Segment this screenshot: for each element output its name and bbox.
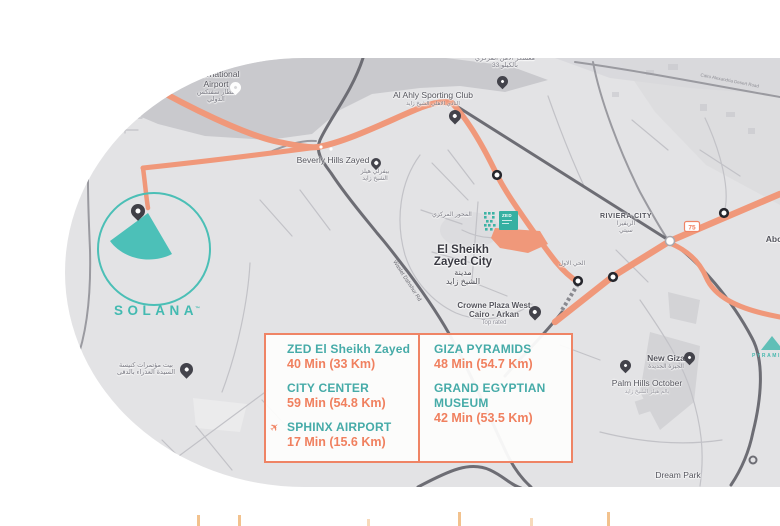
- label-new-giza: New Giza الجيزة الجديدة: [647, 354, 685, 370]
- roundabout-75: [666, 237, 675, 246]
- label-palm-hills: Palm Hills October بالم هيلز الشيخ زايد: [612, 379, 682, 395]
- interchange-blob: [491, 228, 548, 253]
- entry-grand-egyptian-museum: GRAND EGYPTIAN MUSEUM 42 Min (53.5 Km): [434, 381, 566, 426]
- label-alahly: Al Ahly Sporting Club النادي الاهلي الشي…: [393, 91, 473, 107]
- label-beverly-hills: Beverly Hills Zayed: [297, 156, 370, 166]
- solana-circle: [97, 192, 211, 306]
- road-bottom-curve: [418, 466, 521, 487]
- bottom-tick: [530, 518, 533, 526]
- solana-logo: SOLANA™: [114, 303, 200, 318]
- label-hay-awwal: الحي الاول: [559, 261, 585, 268]
- road-bottom-left: [160, 452, 250, 487]
- bottom-tick: [458, 512, 461, 526]
- trademark-symbol: ™: [195, 306, 200, 312]
- distances-infobox: ZED El Sheikh Zayed 40 Min (33 Km) CITY …: [264, 333, 573, 463]
- light-patch: [193, 398, 247, 432]
- hwy-26july: [555, 194, 780, 322]
- map-inner: 75 International Airport مطار سفنكس الدو…: [65, 58, 780, 487]
- pyramids-triangle-icon: [761, 336, 780, 350]
- label-church: بيت مؤتمرات كنيسة السيدة العذراء بالدقى: [117, 362, 175, 377]
- label-camp-33: معسكر الأمن المركزي بالكيلو 33: [475, 58, 535, 70]
- route-75-badge: 75: [685, 222, 700, 232]
- hwy-west: [143, 147, 318, 168]
- bottom-tick: [238, 515, 241, 526]
- infobox-left-column: ZED El Sheikh Zayed 40 Min (33 Km) CITY …: [287, 342, 415, 459]
- label-riviera-city: RIVIERA CITY الريفيرا سيتي: [600, 213, 652, 234]
- airport-zone: [120, 58, 548, 140]
- entry-zed: ZED El Sheikh Zayed 40 Min (33 Km): [287, 342, 415, 372]
- bottom-tick: [607, 512, 610, 526]
- plane-icon: ✈: [267, 420, 282, 436]
- south-roundabout: [750, 457, 757, 464]
- entry-giza-pyramids: GIZA PYRAMIDS 48 Min (54.7 Km): [434, 342, 566, 372]
- zed-logo: ZED: [499, 211, 518, 230]
- label-crowne-plaza: Crowne Plaza West Cairo - Arkan Top rate…: [457, 302, 530, 327]
- label-abo: Abo: [766, 235, 780, 245]
- infobox-divider: [418, 334, 420, 462]
- label-beverly-hills-ar: بيفرلي هيلز الشيخ زايد: [361, 169, 390, 182]
- label-dream-park: Dream Park: [655, 471, 700, 481]
- label-el-sheikh-zayed-city: El Sheikh Zayed City مدينة الشيخ زايد: [434, 245, 492, 286]
- bottom-tick: [367, 519, 370, 526]
- new-giza-blob: [668, 292, 700, 324]
- solana-location-map-page: { "colors":{ "teal":"#46aba8","orange_te…: [0, 0, 780, 526]
- entry-city-center: CITY CENTER 59 Min (54.8 Km): [287, 381, 415, 411]
- label-mehwar: المحور المركزي: [432, 212, 472, 219]
- svg-text:75: 75: [688, 225, 696, 232]
- infobox-right-column: GIZA PYRAMIDS 48 Min (54.7 Km) GRAND EGY…: [434, 342, 566, 435]
- map-canvas[interactable]: 75 International Airport مطار سفنكس الدو…: [65, 58, 780, 487]
- bottom-tick: [197, 515, 200, 526]
- entry-sphinx-airport: ✈ SPHINX AIRPORT 17 Min (15.6 Km): [287, 420, 415, 450]
- pyramids-dev-logo: PYRAMIDS: [752, 336, 780, 359]
